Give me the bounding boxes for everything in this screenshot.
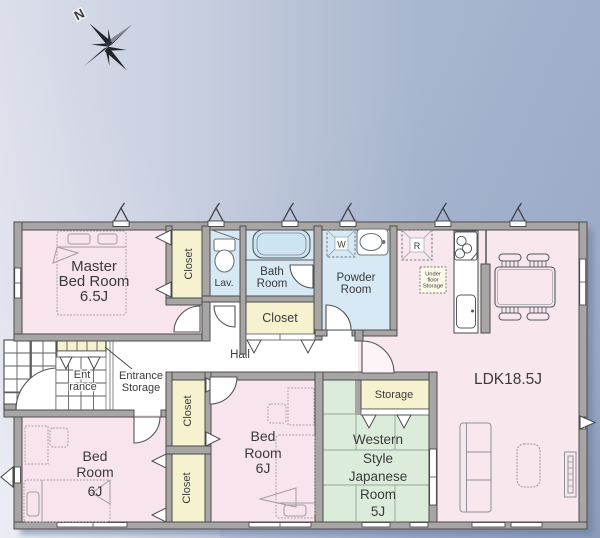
svg-text:Closet: Closet	[262, 311, 298, 325]
svg-text:6J: 6J	[88, 483, 103, 499]
svg-text:R: R	[414, 241, 421, 251]
svg-text:6.5J: 6.5J	[80, 288, 108, 305]
svg-text:LDK18.5J: LDK18.5J	[474, 371, 542, 388]
svg-text:W: W	[337, 240, 346, 250]
svg-text:Style: Style	[363, 451, 393, 466]
svg-text:Bed: Bed	[83, 448, 108, 464]
svg-text:Room: Room	[244, 445, 281, 461]
svg-text:Room: Room	[257, 278, 288, 290]
svg-text:Bed: Bed	[251, 428, 276, 444]
svg-text:Room: Room	[341, 284, 372, 296]
svg-text:Closet: Closet	[182, 395, 194, 426]
svg-text:Japanese: Japanese	[349, 469, 408, 484]
svg-text:Closet: Closet	[181, 472, 193, 503]
svg-text:Storage: Storage	[375, 389, 414, 401]
svg-text:Entrance: Entrance	[119, 370, 163, 382]
svg-text:Room: Room	[360, 487, 396, 502]
svg-text:Room: Room	[76, 464, 113, 480]
svg-text:Storage: Storage	[423, 284, 443, 290]
svg-text:Powder: Powder	[337, 272, 376, 284]
svg-text:Western: Western	[353, 432, 403, 447]
svg-text:Lav.: Lav.	[214, 277, 233, 289]
svg-text:Bath: Bath	[260, 266, 284, 278]
svg-text:6J: 6J	[256, 460, 271, 476]
svg-text:Closet: Closet	[183, 248, 195, 279]
svg-text:5J: 5J	[371, 504, 385, 519]
svg-text:rance: rance	[69, 381, 97, 393]
svg-text:Ent: Ent	[74, 369, 91, 381]
svg-text:Storage: Storage	[122, 382, 161, 394]
